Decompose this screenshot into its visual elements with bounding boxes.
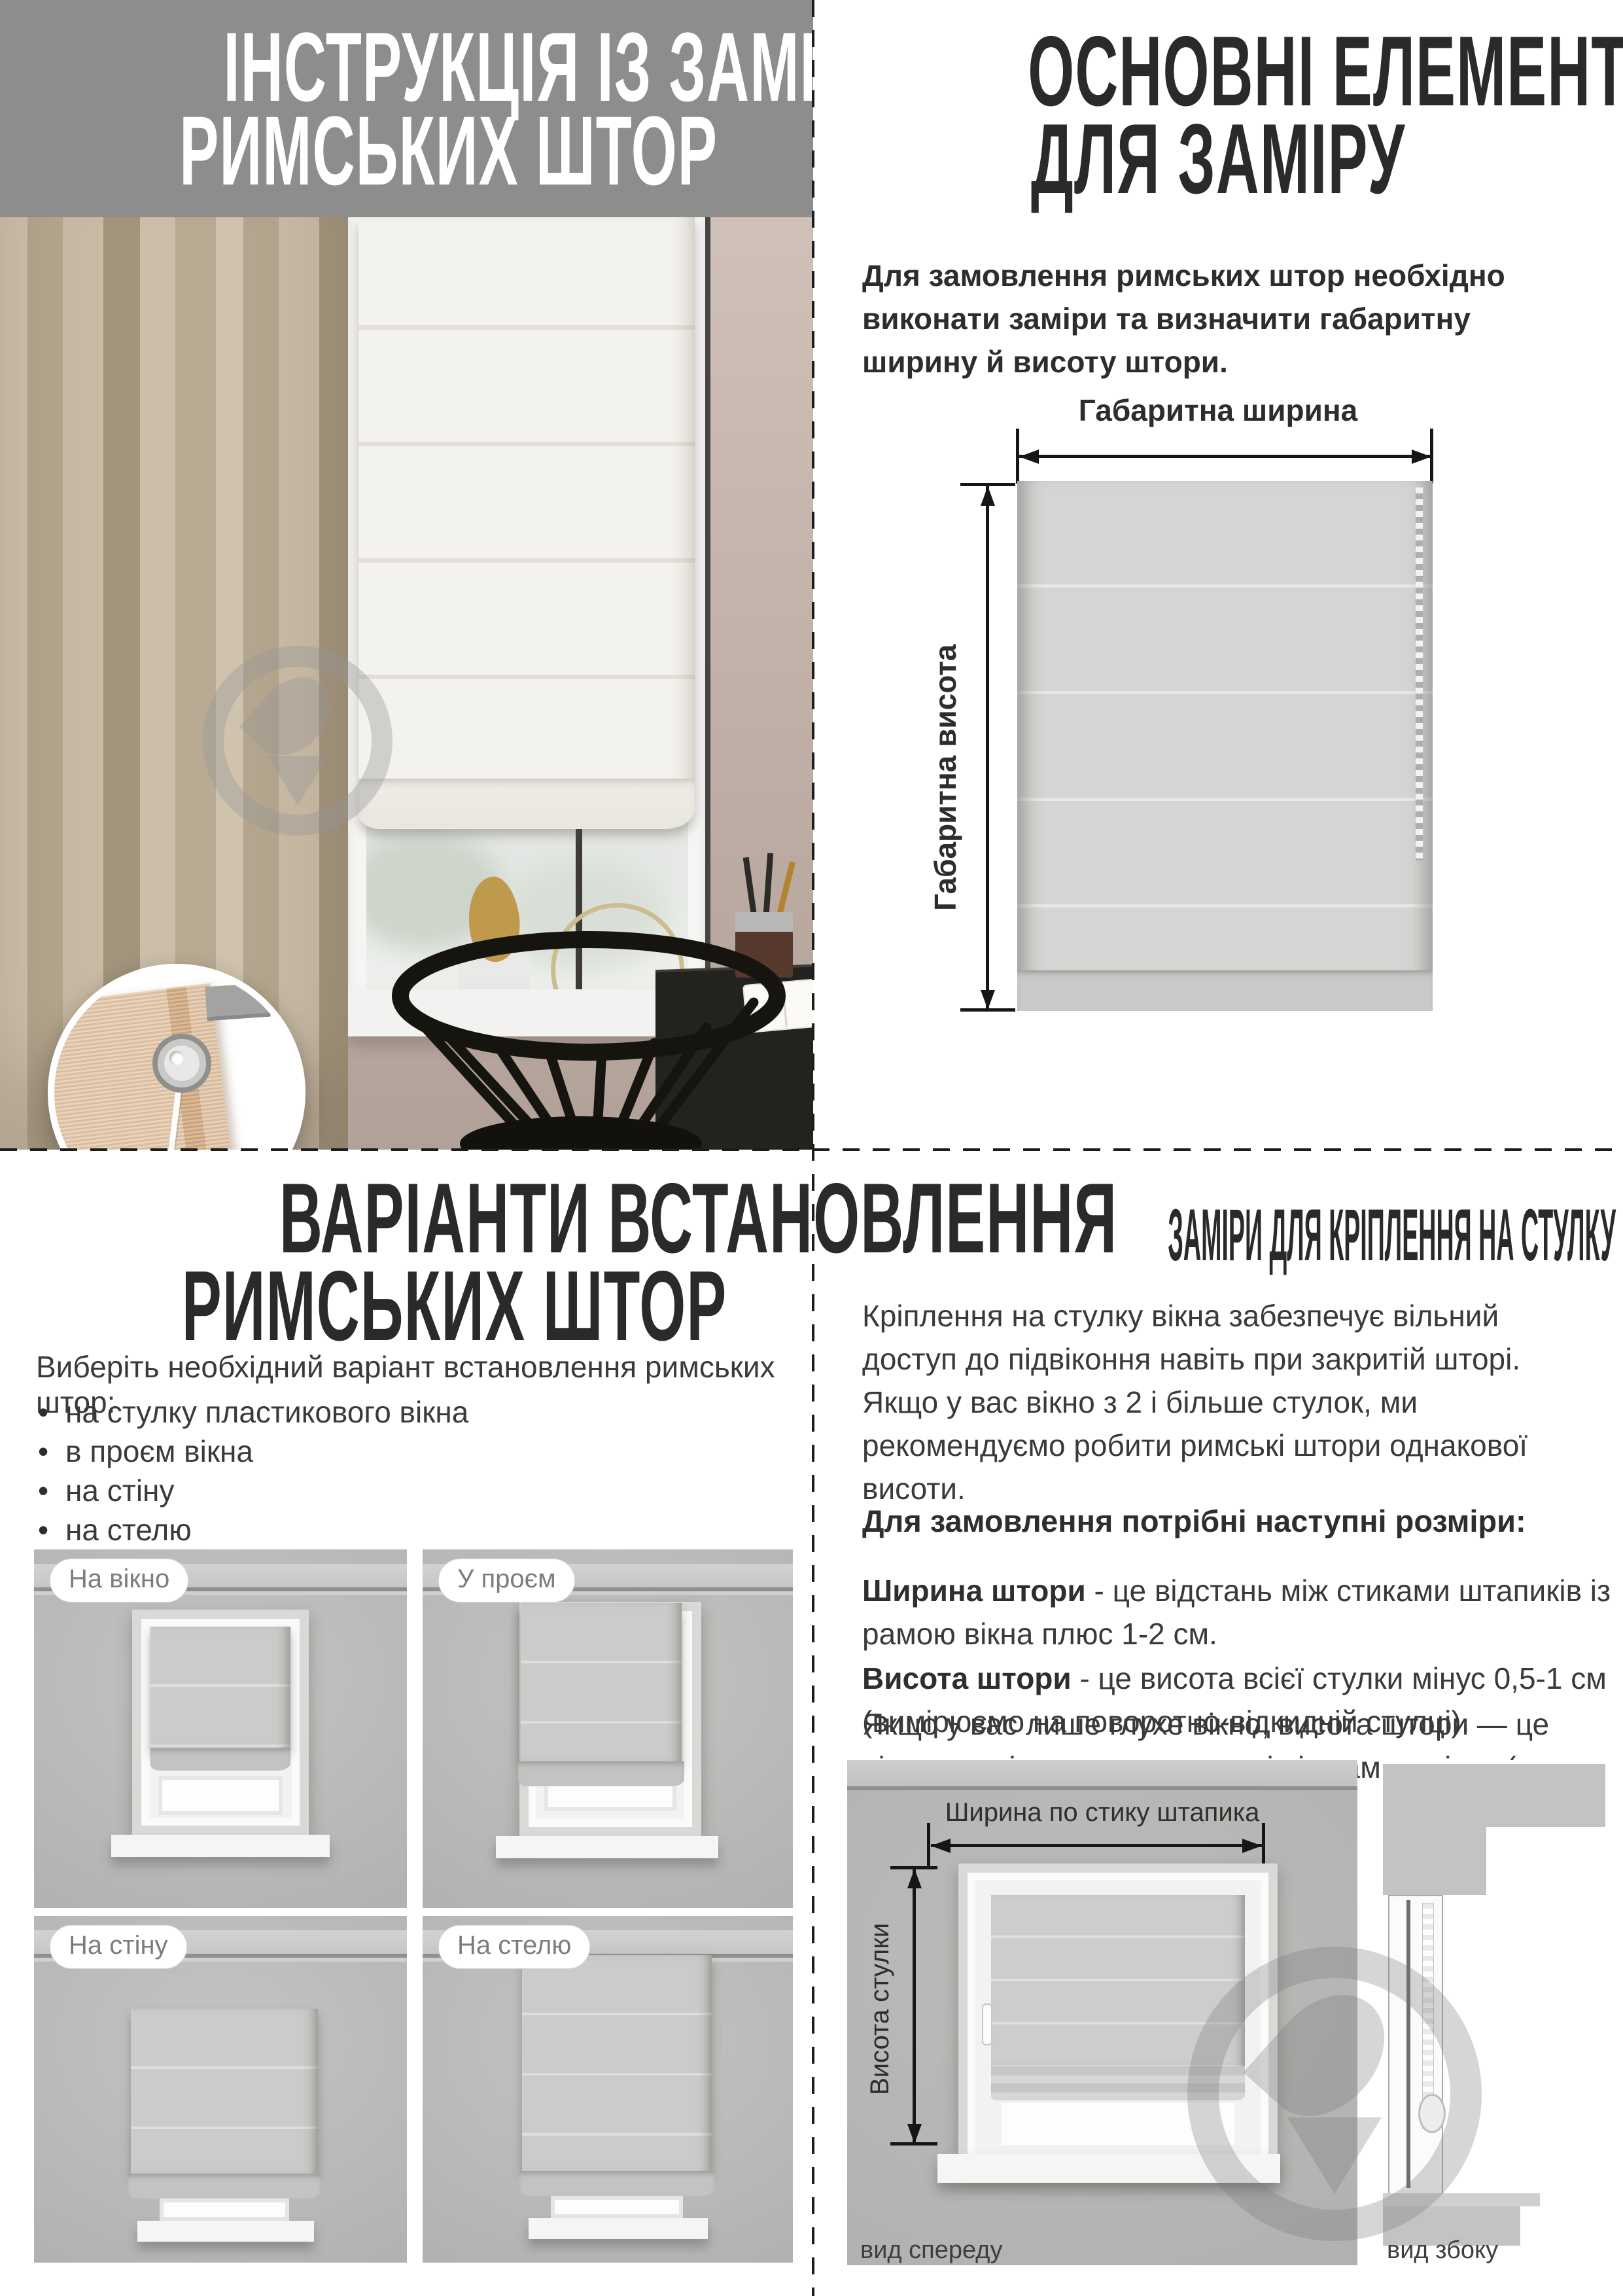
variant-on-window: На вікно	[34, 1549, 407, 1908]
header-banner: ІНСТРУКЦІЯ ІЗ ЗАМІРУ РИМСЬКИХ ШТОР	[0, 0, 813, 217]
variant-window	[132, 1610, 309, 1835]
install-title-line2: РИМСЬКИХ ШТОР	[0, 1262, 813, 1350]
schema-tick	[960, 1008, 1015, 1012]
list-item: на стелю	[38, 1510, 790, 1549]
front-view-width-arrow	[931, 1844, 1262, 1847]
schema-tick	[1016, 429, 1019, 484]
variant-blind	[522, 1955, 712, 2171]
schema-tick	[960, 483, 1015, 486]
variant-glass	[158, 1776, 283, 1815]
sash-paragraph-1: Кріплення на стулку вікна забезпечує віл…	[862, 1294, 1601, 1510]
schema-height-arrow	[986, 486, 989, 1010]
front-view-tick	[890, 1866, 937, 1869]
front-view-width-label: Ширина по стику штапика	[847, 1798, 1357, 1828]
width-term: Ширина штори	[862, 1574, 1086, 1608]
install-title-line1: ВАРІАНТИ ВСТАНОВЛЕННЯ	[0, 1174, 813, 1262]
front-view-height-arrow	[913, 1869, 916, 2144]
variant-sill	[111, 1835, 330, 1857]
height-term: Висота штори	[862, 1661, 1072, 1695]
variant-label: У проєм	[438, 1559, 575, 1602]
variant-blind-hem	[128, 2174, 321, 2199]
schema-blind-hem	[1017, 970, 1433, 1011]
front-view-caption: вид спереду	[860, 2236, 1002, 2265]
section-title-main-elements: ОСНОВНІ ЕЛЕМЕНТИ ДЛЯ ЗАМІРУ	[813, 27, 1623, 203]
front-view-height-label: Висота стулки	[865, 1923, 895, 2095]
watermark-logo-icon	[1187, 1947, 1482, 2241]
variant-sill	[529, 2218, 708, 2239]
page-title: ІНСТРУКЦІЯ ІЗ ЗАМІРУ РИМСЬКИХ ШТОР	[0, 25, 813, 192]
section-title-line2: ДЛЯ ЗАМІРУ	[813, 115, 1623, 203]
variant-blind-hem	[150, 1748, 290, 1771]
front-view-molding	[847, 1760, 1357, 1790]
schema-tick	[1430, 429, 1433, 484]
front-view-handle	[982, 2004, 992, 2045]
sizes-heading: Для замовлення потрібні наступні розміри…	[862, 1500, 1601, 1543]
list-item: на стіну	[38, 1471, 790, 1510]
variant-blind	[150, 1627, 290, 1748]
variant-sill	[137, 2221, 314, 2242]
front-view-tick	[927, 1823, 930, 1866]
photo-roman-blind-hem	[358, 779, 695, 828]
width-definition: Ширина штори - це відстань між стиками ш…	[862, 1569, 1611, 1655]
list-item: на стулку пластикового вікна	[38, 1392, 790, 1432]
page-title-line2: РИМСЬКИХ ШТОР	[0, 109, 813, 192]
variant-on-ceiling: На стелю	[423, 1916, 793, 2263]
front-view-tick	[890, 2142, 937, 2146]
variant-glass	[551, 2196, 683, 2218]
schema-height-label: Габаритна висота	[928, 645, 963, 911]
schema-blind-fabric	[1017, 481, 1433, 1011]
section-title-install-variants: ВАРІАНТИ ВСТАНОВЛЕННЯ РИМСЬКИХ ШТОР	[0, 1174, 813, 1350]
side-view-caption: вид збоку	[1387, 2236, 1498, 2265]
variant-blind	[521, 1603, 682, 1761]
section-title-line1: ОСНОВНІ ЕЛЕМЕНТИ	[813, 27, 1623, 115]
side-view-wall-section	[1383, 1764, 1486, 1895]
variant-label: На стіну	[50, 1925, 187, 1969]
inset-eyelet	[152, 1034, 211, 1093]
watermark-logo-icon	[203, 646, 393, 836]
photo-chair	[327, 904, 813, 1150]
variant-blind-hem	[519, 2171, 714, 2196]
schema-chain	[1416, 487, 1423, 860]
variant-glass	[160, 2199, 289, 2221]
front-view-tick	[1262, 1823, 1265, 1866]
variant-blind-hem	[518, 1761, 684, 1786]
variant-on-wall: На стіну	[34, 1916, 407, 2263]
inset-mount-bracket	[205, 983, 271, 1021]
main-elements-intro: Для замовлення римських штор необхідно в…	[862, 254, 1594, 383]
roman-blind-room-photo	[0, 217, 813, 1150]
variant-in-opening: У проєм	[423, 1549, 793, 1908]
install-options-list: на стулку пластикового вікна в проєм вік…	[38, 1392, 790, 1549]
photo-roman-blind	[358, 217, 695, 829]
variant-label: На стелю	[438, 1925, 590, 1969]
leaflet-page: ІНСТРУКЦІЯ ІЗ ЗАМІРУ РИМСЬКИХ ШТОР	[0, 0, 1623, 2296]
schema-width-arrow	[1019, 455, 1431, 458]
sash-title-line: ЗАМІРИ ДЛЯ КРІПЛЕННЯ НА СТУЛКУ ВІКНА	[991, 1199, 1444, 1272]
list-item: в проєм вікна	[38, 1432, 790, 1471]
section-title-sash-measure: ЗАМІРИ ДЛЯ КРІПЛЕННЯ НА СТУЛКУ ВІКНА	[813, 1199, 1623, 1272]
variant-blind	[131, 2009, 318, 2174]
horizontal-dashed-divider	[0, 1148, 1623, 1151]
variant-label: На вікно	[50, 1559, 188, 1602]
variant-sill	[496, 1836, 718, 1858]
schema-width-label: Габаритна ширина	[813, 393, 1623, 428]
